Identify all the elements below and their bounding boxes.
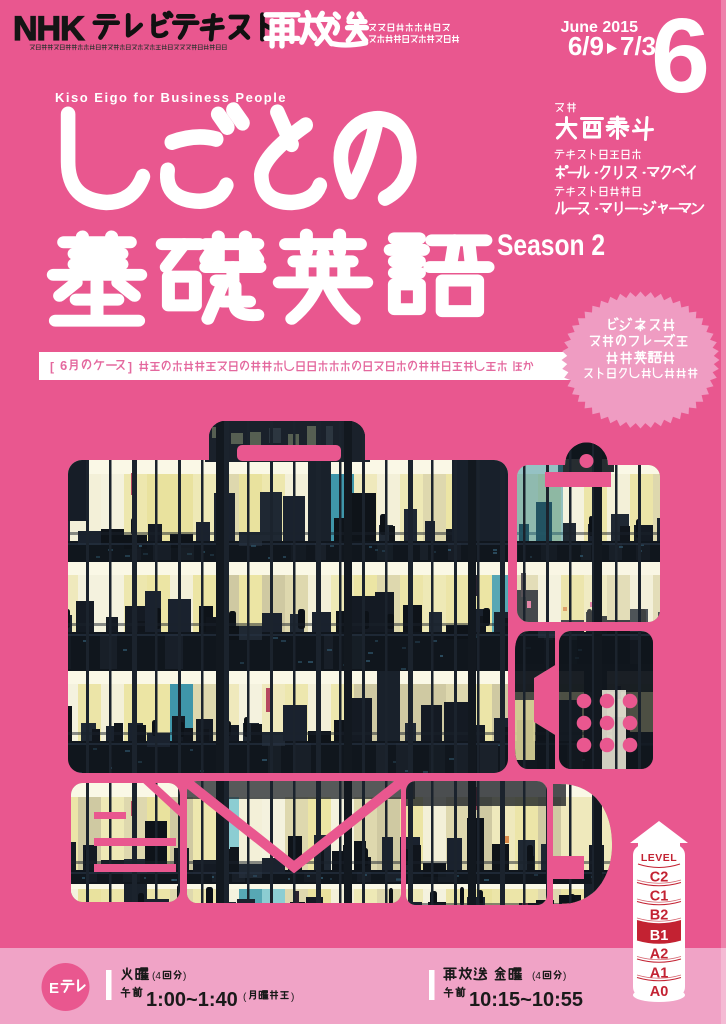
svg-text:B1: B1 — [650, 928, 669, 944]
svg-text:C2: C2 — [650, 870, 669, 886]
svg-text:Season 2: Season 2 — [497, 229, 605, 262]
svg-text:Kiso Eigo for Business People: Kiso Eigo for Business People — [55, 90, 287, 105]
svg-text:(4: (4 — [152, 971, 161, 982]
svg-text:6: 6 — [60, 358, 67, 373]
svg-text:[: [ — [50, 360, 54, 374]
svg-text:): ) — [183, 971, 186, 982]
svg-text:A1: A1 — [650, 966, 669, 982]
svg-text:A0: A0 — [650, 984, 669, 1000]
svg-text:): ) — [291, 992, 294, 1003]
svg-text:LEVEL: LEVEL — [641, 852, 677, 864]
svg-text:6: 6 — [651, 0, 710, 115]
svg-text:C1: C1 — [650, 889, 669, 905]
svg-text:): ) — [563, 971, 566, 982]
svg-text:A2: A2 — [650, 947, 669, 963]
svg-text:B2: B2 — [650, 908, 669, 924]
svg-text:NHK: NHK — [13, 10, 85, 48]
svg-text:]: ] — [128, 360, 132, 374]
svg-text:10:15~10:55: 10:15~10:55 — [469, 989, 583, 1011]
svg-text:(4: (4 — [532, 971, 541, 982]
svg-text:6/9: 6/9 — [568, 31, 604, 61]
svg-text:E: E — [49, 980, 59, 997]
svg-text:1:00~1:40: 1:00~1:40 — [146, 989, 238, 1011]
